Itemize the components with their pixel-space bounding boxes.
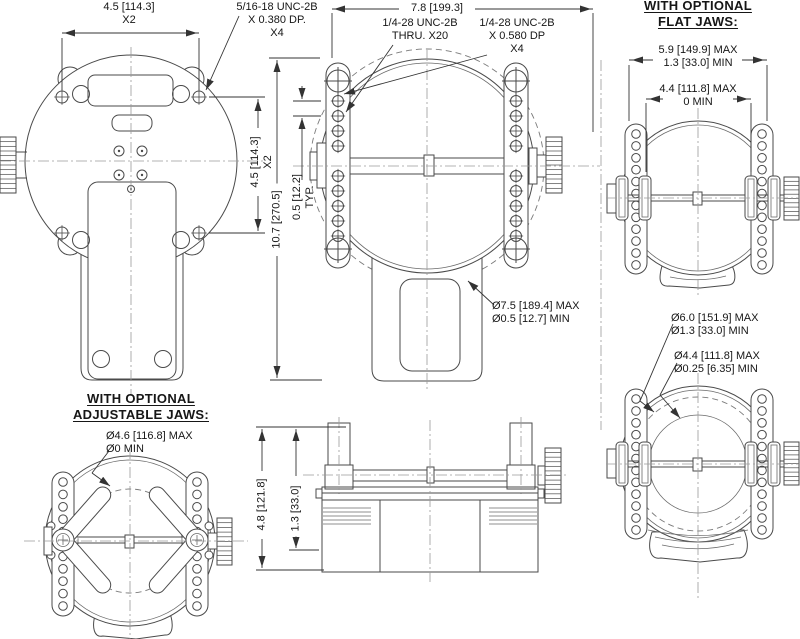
- front-view: [293, 49, 600, 390]
- flat-jaws-capacity-view: [606, 373, 799, 601]
- dim-1-3-label: 1.3 [33.0]: [290, 481, 303, 537]
- engineering-drawing-page: 4.5 [114.3] X2 5/16-18 UNC-2B X 0.380 DP…: [0, 0, 800, 639]
- adjust-knob-left: [0, 137, 16, 193]
- adjust-knob-right: [546, 137, 562, 193]
- dim-5-9-label: 5.9 [149.9] MAX 1.3 [33.0] MIN: [637, 44, 759, 70]
- flat-jaws-view: [606, 108, 799, 297]
- adjust-knob-right: [784, 177, 799, 220]
- dia-4-4-callout: Ø4.4 [111.8] MAX Ø0.25 [6.35] MIN: [674, 350, 786, 376]
- dim-10-7-label: 10.7 [270.5]: [271, 184, 284, 256]
- adjust-knob-right: [545, 448, 561, 503]
- dim-0-5-typ-label: 0.5 [12.2] TYP.: [291, 168, 317, 226]
- dim-4-5-top-label: 4.5 [114.3] X2: [69, 1, 189, 27]
- note-0580-dp-label: 1/4-28 UNC-2B X 0.580 DP X4: [455, 17, 579, 56]
- dim-4-8-label: 4.8 [121.8]: [256, 473, 269, 537]
- dia-4-6-callout: Ø4.6 [116.8] MAX Ø0 MIN: [106, 430, 216, 456]
- side-view: [303, 417, 566, 582]
- dia-6-0-callout: Ø6.0 [151.9] MAX Ø1.3 [33.0] MIN: [671, 312, 783, 338]
- adjustable-jaws-view: [24, 448, 248, 639]
- dia-7-5-callout: Ø7.5 [189.4] MAX Ø0.5 [12.7] MIN: [492, 300, 604, 326]
- dim-7-8-label: 7.8 [199.3]: [399, 2, 475, 15]
- dim-4-4-flat-label: 4.4 [111.8] MAX 0 MIN: [637, 83, 759, 109]
- adjustable-jaws-heading: WITH OPTIONAL ADJUSTABLE JAWS:: [40, 391, 242, 423]
- adjust-knob-right: [784, 442, 799, 485]
- adjust-knob-right: [217, 518, 232, 565]
- flat-jaws-heading: WITH OPTIONAL FLAT JAWS:: [612, 0, 784, 30]
- back-view: [0, 47, 263, 396]
- note-5-16-unc-label: 5/16-18 UNC-2B X 0.380 DP. X4: [215, 1, 339, 40]
